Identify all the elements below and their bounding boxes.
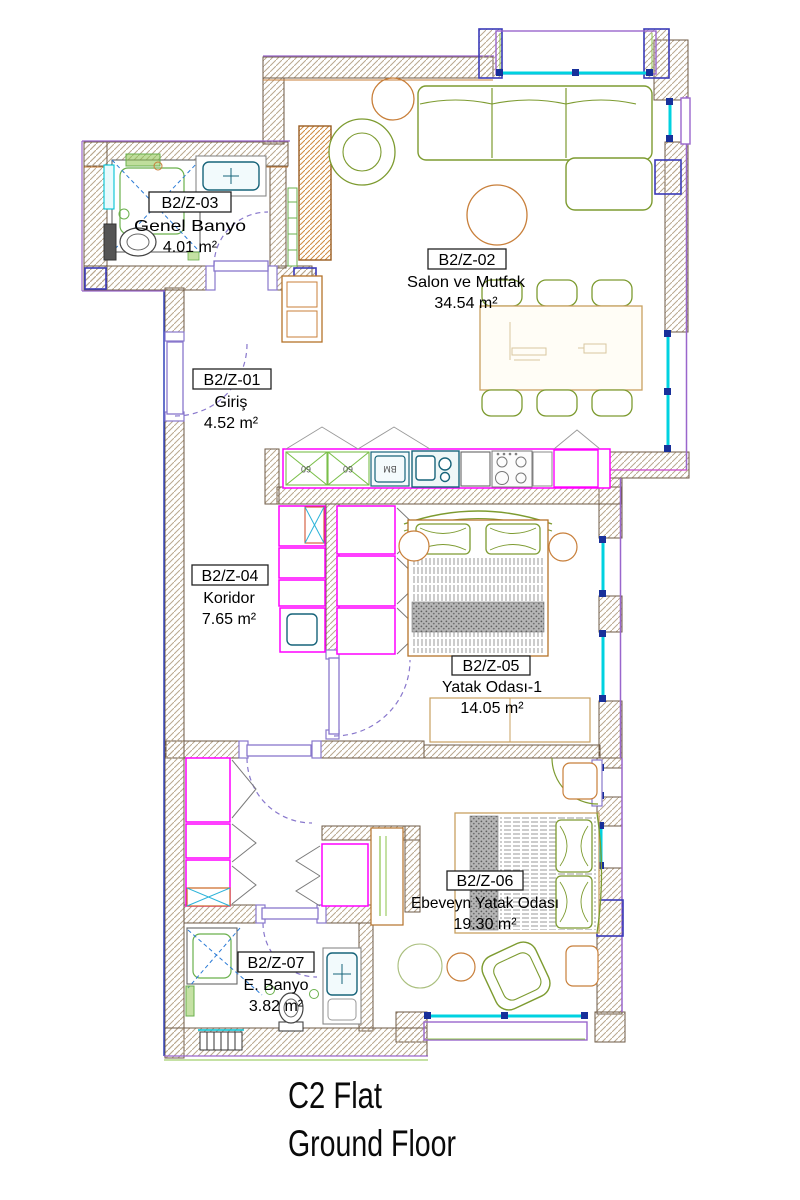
ebanyo-towel-rail (186, 986, 194, 1016)
wall-left-lower (165, 412, 184, 1058)
walkin-tall-cabinet (371, 828, 403, 925)
room-name: Giriş (215, 394, 248, 411)
ebanyo-stool (328, 999, 356, 1020)
wall-kitchen (277, 487, 621, 504)
room-code: B2/Z-07 (248, 955, 305, 972)
room-name: E. Banyo (244, 977, 309, 994)
kitchen-cabinet-plain (461, 452, 490, 486)
bed1-nightstand-right (549, 533, 577, 561)
door-swing-bedroom1 (334, 660, 410, 736)
room-code: B2/Z-04 (202, 568, 259, 585)
room-code: B2/Z-06 (457, 873, 514, 890)
coffee-table-round (467, 185, 527, 245)
wall-bath-right (270, 166, 286, 268)
dining-chair (537, 390, 577, 416)
balcony-bottom (424, 1022, 587, 1040)
column-master-right (597, 900, 623, 936)
cooktop (492, 451, 532, 487)
dishwasher-label: BM (383, 464, 397, 474)
sofa-chaise (566, 158, 652, 210)
bedroom1-wardrobe (337, 506, 395, 654)
entry-cabinet (282, 276, 322, 342)
master-side-table (447, 953, 475, 981)
walkin-wardrobe-left (186, 758, 230, 906)
upper-cabinet-swings (286, 427, 600, 449)
walkin-unit-x (187, 888, 230, 906)
side-table-round (372, 78, 414, 120)
bed1-nightstand-left (399, 531, 429, 561)
radiator-living (288, 188, 297, 266)
kitchen-counter: 60 60 BM (283, 427, 610, 488)
column-right-wall (655, 160, 681, 194)
title-line2: Ground Floor (288, 1123, 456, 1164)
title-line1: C2 Flat (288, 1075, 383, 1116)
walkin-wardrobe-swings (232, 760, 256, 904)
room-code: B2/Z-02 (439, 252, 496, 269)
master-armchair (477, 937, 554, 1014)
dining-table (480, 306, 642, 390)
towel-rail (104, 165, 114, 209)
room-name: Koridor (203, 590, 255, 607)
dining-chair (482, 390, 522, 416)
room-area: 34.54 m² (434, 295, 498, 312)
sofa-main (418, 86, 652, 160)
room-label-z04: B2/Z-04 Koridor 7.65 m² (192, 565, 268, 628)
dining-set (480, 280, 642, 416)
wall-corner-se (595, 1012, 625, 1042)
wall-divider-b (312, 741, 424, 758)
door-leaf-bedroom1 (329, 658, 339, 734)
wall-bed1-corner (599, 701, 622, 758)
wall-living-left (263, 78, 284, 144)
fridge (554, 450, 598, 487)
toilet-cistern (104, 224, 116, 260)
room-area: 14.05 m² (460, 700, 524, 717)
wall-master-top (424, 745, 600, 758)
dining-chair (537, 280, 577, 306)
kitchen-cabinet-narrow (533, 452, 552, 486)
walkin-middle-swings (296, 846, 320, 906)
cabinet-size-label: 60 (301, 464, 311, 474)
wall-step-right (601, 452, 689, 478)
wall-kitchen-stub (265, 449, 279, 504)
dining-chair (592, 390, 632, 416)
room-name: Ebeveyn Yatak Odası (411, 895, 559, 912)
room-label-z01: B2/Z-01 Giriş 4.52 m² (193, 369, 271, 432)
room-area: 4.01 m² (163, 239, 218, 256)
floor-plan-drawing: 60 60 BM (0, 0, 800, 1200)
room-area: 19.30 m² (453, 916, 517, 933)
door-swing-walkin (247, 758, 312, 823)
room-area: 7.65 m² (202, 611, 257, 628)
room-area: 3.82 m² (249, 998, 304, 1015)
kitchen-sink (412, 451, 459, 487)
room-name: Genel Banyo (134, 218, 246, 235)
walkin-wardrobe-middle (322, 844, 368, 906)
wall-bed1-pier2 (599, 596, 622, 632)
room-code: B2/Z-05 (463, 658, 520, 675)
bed1-pillow-right (486, 524, 540, 554)
corridor-cabinets (279, 506, 325, 652)
ebanyo-radiator (200, 1032, 242, 1050)
wall-ebanyo-top-a (184, 905, 265, 923)
shaft-duct (299, 126, 331, 260)
dining-chair (592, 280, 632, 306)
cabinet-size-label: 60 (343, 464, 353, 474)
wall-living-top (263, 57, 493, 78)
window-sill-living-right (681, 98, 690, 144)
room-name: Salon ve Mutfak (407, 274, 526, 291)
room-name: Yatak Odası-1 (442, 679, 542, 696)
door-leaf-walkin (247, 745, 311, 756)
floor-plan-canvas: 60 60 BM (0, 0, 800, 1200)
room-code: B2/Z-03 (162, 195, 219, 212)
master-nightstand-top (563, 763, 597, 799)
room-label-z07: B2/Z-07 E. Banyo 3.82 m² (238, 952, 314, 1015)
plan-title: C2 Flat Ground Floor (288, 1075, 456, 1164)
column-bath-sw (85, 268, 106, 289)
room-code: B2/Z-01 (204, 372, 261, 389)
master-nightstand-bottom (566, 946, 598, 986)
bed1-runner (412, 602, 544, 632)
door-leaf-genel-banyo (214, 261, 268, 271)
balcony-top (496, 31, 656, 74)
master-chair-extra (398, 944, 442, 988)
wall-master-lower (597, 936, 622, 1014)
room-area: 4.52 m² (204, 415, 259, 432)
door-leaf-entry (167, 342, 183, 414)
armchair-round (329, 119, 395, 185)
door-leaf-ebanyo (262, 908, 318, 919)
